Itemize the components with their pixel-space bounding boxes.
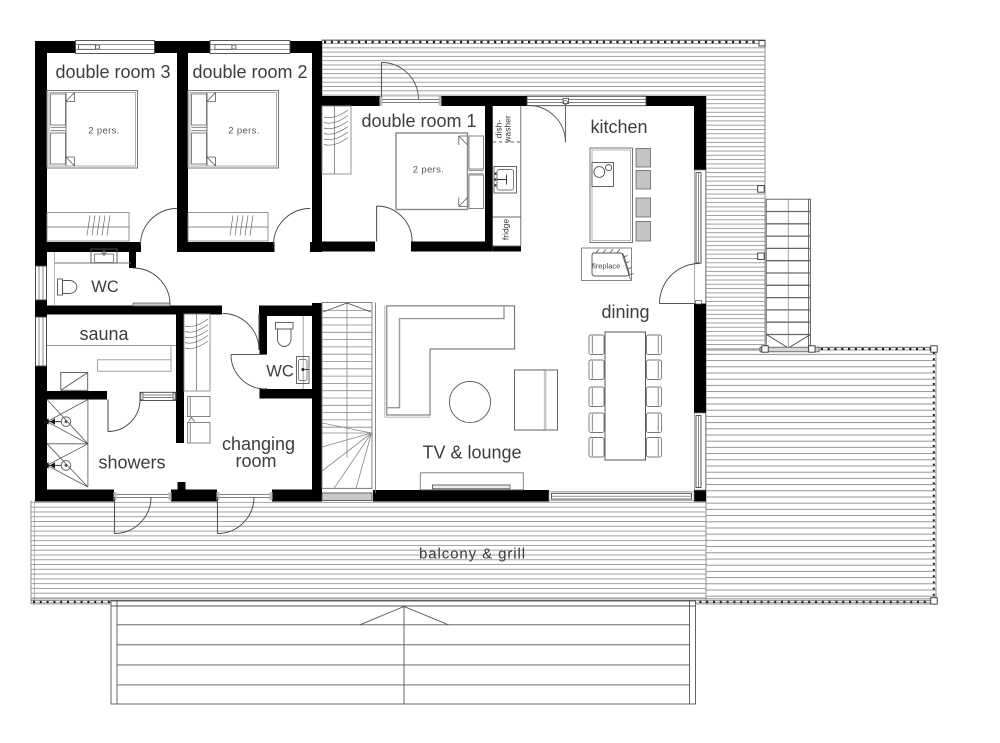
svg-text:room: room (235, 451, 276, 471)
svg-text:TV & lounge: TV & lounge (422, 443, 521, 463)
svg-text:double room 3: double room 3 (55, 62, 170, 82)
svg-text:2 pers.: 2 pers. (228, 126, 260, 137)
svg-text:2 pers.: 2 pers. (413, 165, 445, 176)
svg-text:double room 2: double room 2 (192, 62, 307, 82)
svg-text:fridge: fridge (501, 219, 511, 241)
svg-text:balcony & grill: balcony & grill (419, 546, 526, 563)
svg-text:sauna: sauna (79, 324, 129, 344)
svg-text:kitchen: kitchen (590, 117, 647, 137)
svg-text:showers: showers (98, 453, 165, 473)
svg-text:2 pers.: 2 pers. (88, 126, 120, 137)
svg-text:double room 1: double room 1 (361, 111, 476, 131)
svg-text:WC: WC (266, 363, 294, 381)
svg-text:dining: dining (601, 302, 649, 322)
svg-text:washer: washer (503, 115, 513, 144)
svg-text:WC: WC (91, 278, 119, 296)
svg-text:fireplace: fireplace (592, 262, 620, 271)
